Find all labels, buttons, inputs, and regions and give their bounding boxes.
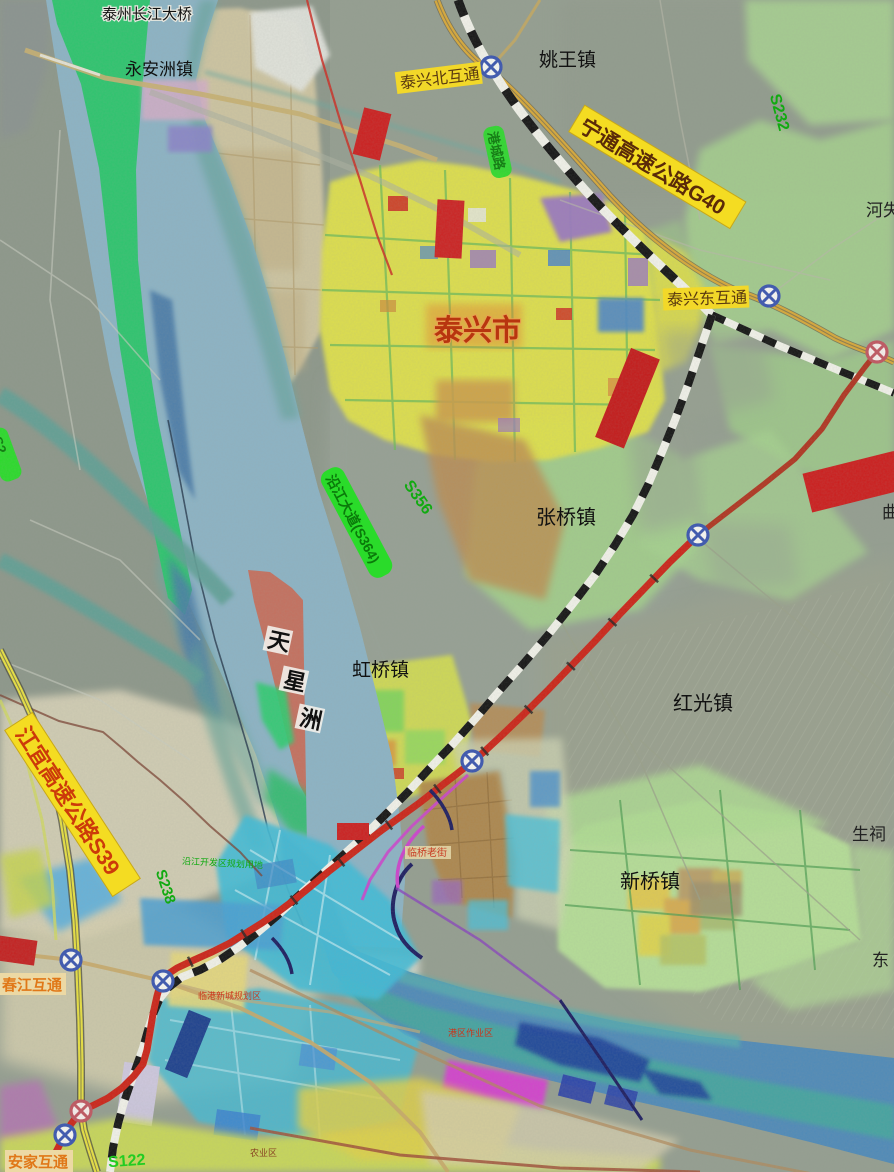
svg-text:东: 东 — [872, 951, 889, 970]
svg-text:泰州长江大桥: 泰州长江大桥 — [102, 6, 192, 23]
svg-text:虹桥镇: 虹桥镇 — [352, 659, 409, 681]
svg-text:新桥镇: 新桥镇 — [620, 870, 680, 893]
svg-text:曲: 曲 — [882, 503, 894, 522]
svg-text:泰兴东互通: 泰兴东互通 — [667, 289, 748, 310]
svg-text:河失: 河失 — [866, 201, 894, 220]
svg-text:安家互通: 安家互通 — [8, 1153, 68, 1171]
svg-text:临港新城规划区: 临港新城规划区 — [198, 990, 261, 1001]
svg-text:红光镇: 红光镇 — [673, 692, 733, 715]
svg-text:S122: S122 — [108, 1152, 147, 1172]
svg-text:姚王镇: 姚王镇 — [539, 49, 596, 71]
svg-text:春江互通: 春江互通 — [2, 976, 62, 994]
svg-text:张桥镇: 张桥镇 — [536, 506, 596, 529]
svg-text:港区作业区: 港区作业区 — [448, 1027, 493, 1038]
svg-text:泰兴市: 泰兴市 — [434, 313, 521, 347]
svg-text:农业区: 农业区 — [250, 1147, 277, 1158]
svg-text:生祠: 生祠 — [852, 825, 886, 844]
svg-text:永安洲镇: 永安洲镇 — [125, 60, 193, 79]
